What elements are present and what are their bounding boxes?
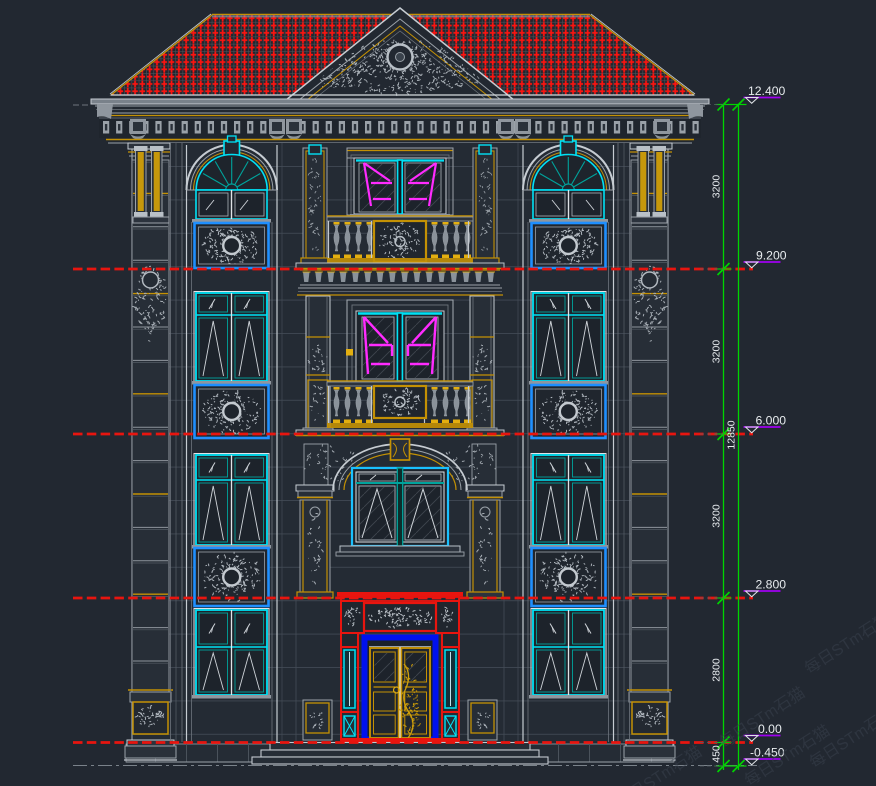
svg-text:3200: 3200 (711, 175, 723, 199)
svg-text:12850: 12850 (726, 420, 738, 449)
svg-text:3200: 3200 (711, 504, 723, 528)
svg-text:9.200: 9.200 (756, 249, 787, 263)
svg-text:2800: 2800 (711, 658, 723, 682)
svg-text:6.000: 6.000 (756, 414, 787, 428)
svg-text:12.400: 12.400 (748, 84, 785, 98)
svg-text:3200: 3200 (711, 340, 723, 364)
svg-text:450: 450 (711, 745, 723, 763)
svg-text:2.800: 2.800 (756, 578, 787, 592)
